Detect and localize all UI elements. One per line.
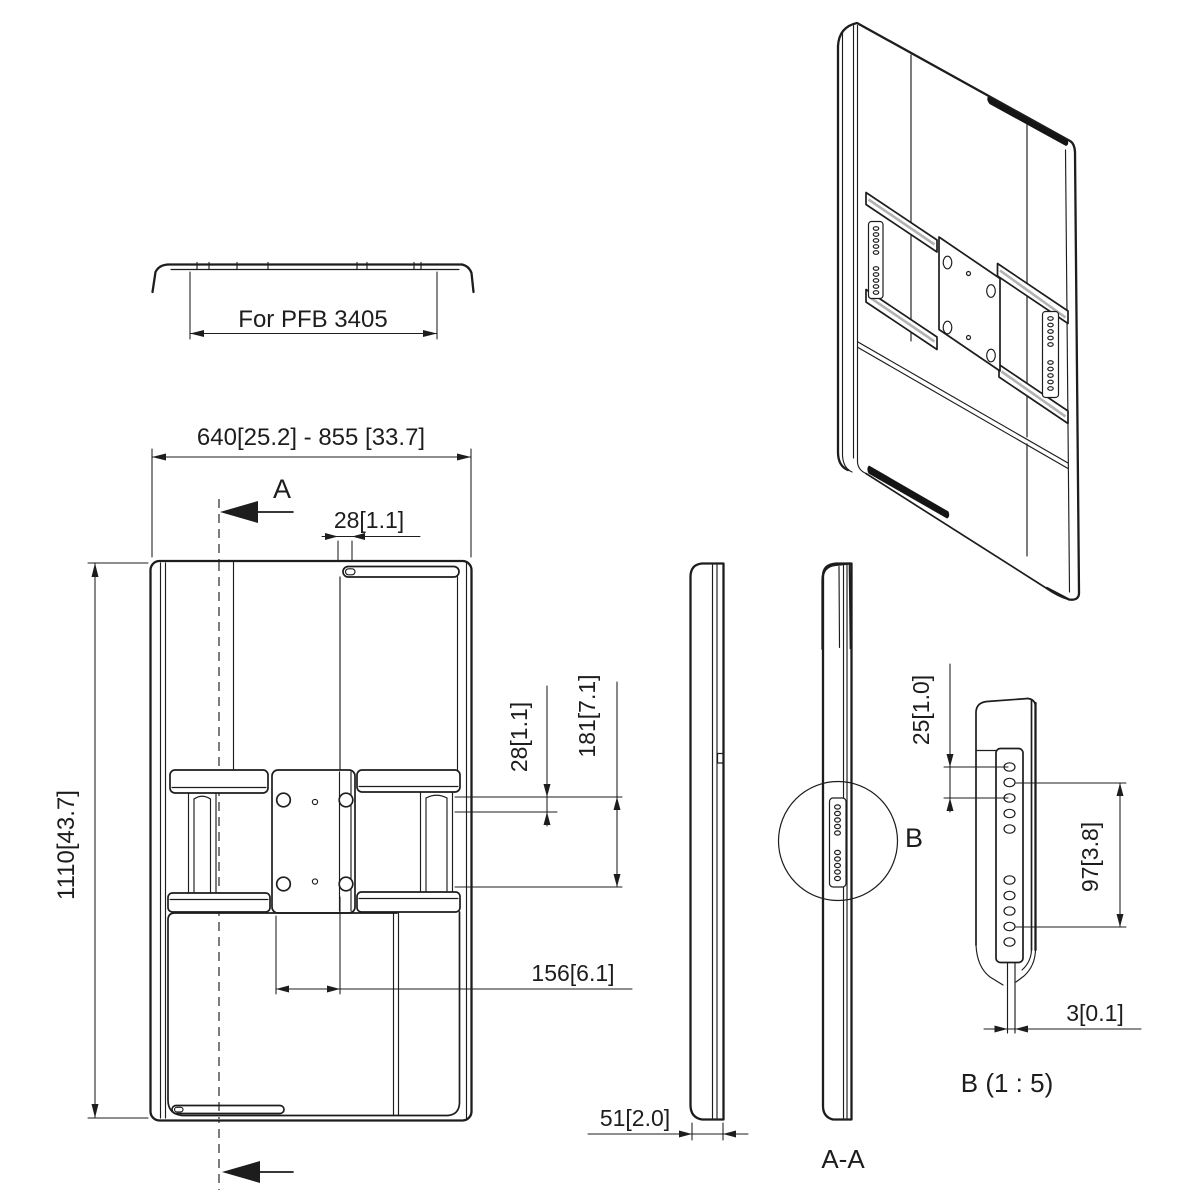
dim-detail-span: 97[3.8] [1016,783,1126,927]
front-view: 640[25.2] - 855 [33.7] A 28[1.1] [53,424,632,1190]
top-view-left-hook [153,265,169,293]
perspective-strap-left [869,222,884,299]
dim-height-label: 1110[43.7] [53,790,80,900]
section-title: A-A [821,1144,865,1174]
dim-for-pfb-3405: For PFB 3405 [190,272,437,339]
dim-slot-offset-label: 28[1.1] [334,507,404,533]
top-view-dim-label: For PFB 3405 [238,306,387,333]
perspective-top-slot [987,97,1068,147]
dim-detail-thickness-label: 3[0.1] [1066,1000,1124,1026]
side-view-outline [691,564,724,1120]
section-arrow-bottom [222,1161,293,1183]
technical-drawing: For PFB 3405 640[25.2] - 855 [33.7] A [0,0,1200,1200]
drawing-canvas: For PFB 3405 640[25.2] - 855 [33.7] A [0,0,1200,1200]
detail-marker-label: B [905,823,923,853]
dim-hole-span-vertical: 181[7.1] [455,674,622,887]
top-view: For PFB 3405 [153,263,474,340]
vesa-plate [272,770,355,913]
perspective-bottom-slot [867,466,949,519]
upper-rail-left [170,770,268,793]
upper-rail-right [357,770,460,792]
detail-view-b: 25[1.0] 97[3.8] 3[0.1] B (1 : 5) [908,664,1141,1098]
plate-hole [277,877,291,891]
dim-detail-hole-pitch: 25[1.0] [908,664,1008,812]
lower-rail-left [168,893,270,912]
section-arrow-label: A [273,474,291,504]
dim-depth-label: 51[2.0] [600,1105,670,1131]
perspective-view [823,23,1080,649]
dim-hole-offset-label: 28[1.1] [506,702,532,772]
dim-detail-hole-pitch-label: 25[1.0] [908,675,934,745]
dim-detail-span-label: 97[3.8] [1077,822,1103,892]
section-arrow-top: A [220,474,293,523]
perspective-vesa-plate [939,237,1000,371]
perspective-strap-right [1043,312,1059,398]
side-view-left: 51[2.0] [588,564,748,1141]
dim-hole-span-horizontal-label: 156[6.1] [531,960,614,986]
top-view-right-hook [462,265,474,293]
plate-hole [277,793,291,807]
section-view-aa: B A-A [779,564,924,1175]
dim-width-label: 640[25.2] - 855 [33.7] [197,424,425,451]
dim-width-range: 640[25.2] - 855 [33.7] [152,424,471,557]
section-aa-hole-strip [830,798,847,887]
dim-hole-span-vertical-label: 181[7.1] [574,674,600,757]
detail-hole-strip [977,749,1023,963]
dim-height: 1110[43.7] [53,563,148,1118]
plate-hole [339,877,353,891]
lower-rail-right [357,892,460,912]
plate-hole [339,793,353,807]
dim-slot-offset: 28[1.1] [322,507,420,565]
detail-view-title: B (1 : 5) [961,1068,1053,1098]
